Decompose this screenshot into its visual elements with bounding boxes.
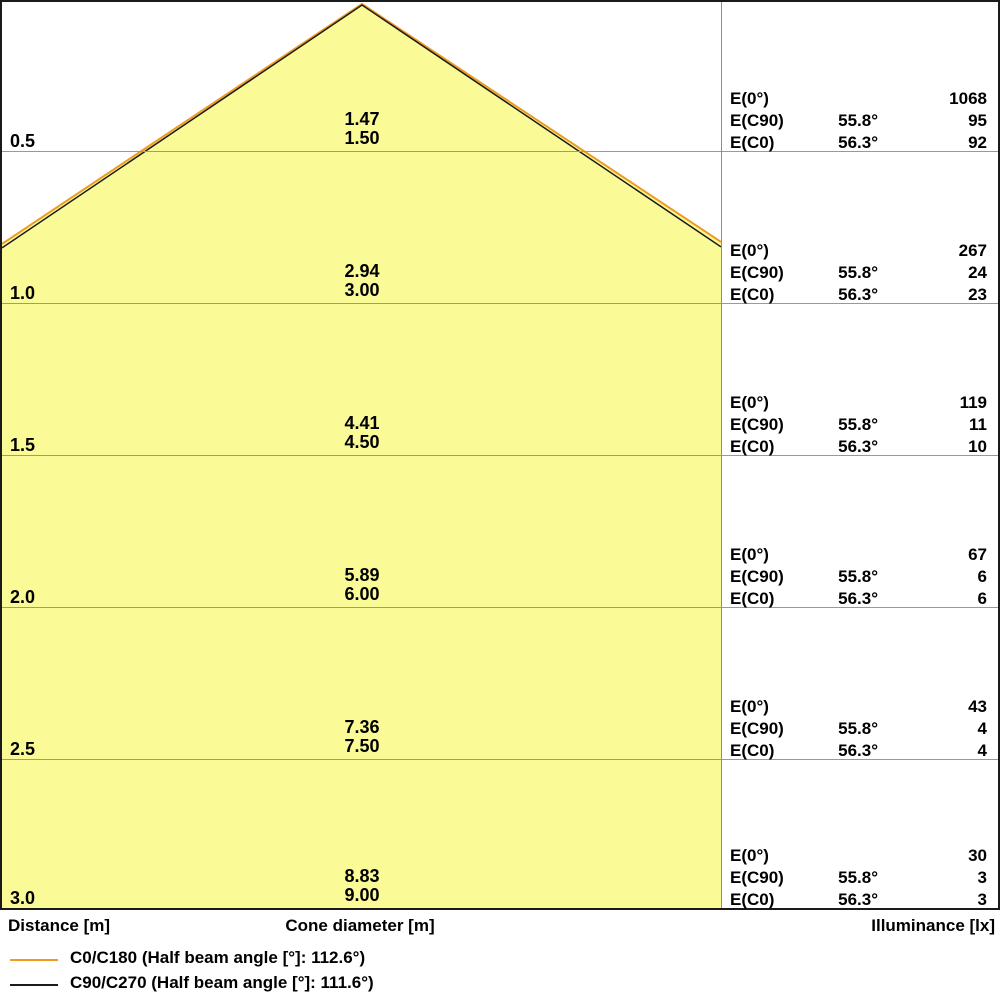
ec0-value: 6 [978,588,987,610]
e0-label: E(0°) [730,88,769,110]
e0-label: E(0°) [730,845,769,867]
illuminance-block: E(0°) 267 E(C90) 55.8° 24 E(C0) 56.3° 23 [721,240,998,306]
ec90-value: 24 [968,262,987,284]
distance-label: 3.0 [10,888,35,908]
ec90-value: 6 [978,566,987,588]
ec90-angle: 55.8° [838,262,878,284]
illuminance-e0-row: E(0°) 1068 [721,88,998,110]
cone-diameter-c90: 2.94 [301,262,423,281]
e0-value: 267 [959,240,987,262]
e0-label: E(0°) [730,696,769,718]
illuminance-ec90-row: E(C90) 55.8° 95 [721,110,998,132]
ec0-value: 23 [968,284,987,306]
cone-diameter-c0: 9.00 [301,886,423,905]
e0-value: 1068 [949,88,987,110]
ec0-value: 10 [968,436,987,458]
ec90-angle: 55.8° [838,867,878,889]
illuminance-e0-row: E(0°) 43 [721,696,998,718]
ec90-value: 4 [978,718,987,740]
illuminance-block: E(0°) 43 E(C90) 55.8° 4 E(C0) 56.3° 4 [721,696,998,762]
ec90-label: E(C90) [730,867,784,889]
ec90-value: 11 [969,414,987,436]
distance-label: 1.0 [10,283,35,303]
illuminance-ec0-row: E(C0) 56.3° 4 [721,740,998,762]
illuminance-ec90-row: E(C90) 55.8° 3 [721,867,998,889]
cone-diameter-c90: 4.41 [301,414,423,433]
illuminance-e0-row: E(0°) 119 [721,392,998,414]
ec90-label: E(C90) [730,718,784,740]
illuminance-ec0-row: E(C0) 56.3° 10 [721,436,998,458]
e0-value: 30 [968,845,987,867]
illuminance-ec90-row: E(C90) 55.8° 24 [721,262,998,284]
ec90-angle: 55.8° [838,566,878,588]
cone-diameter-values: 8.83 9.00 [301,867,423,905]
x-axis-label-distance: Distance [m] [8,916,110,936]
illuminance-e0-row: E(0°) 267 [721,240,998,262]
x-axis-label-cone-diameter: Cone diameter [m] [280,916,440,936]
ec90-angle: 55.8° [838,110,878,132]
ec90-value: 95 [968,110,987,132]
ec90-label: E(C90) [730,110,784,132]
illuminance-ec90-row: E(C90) 55.8° 11 [721,414,998,436]
illuminance-ec90-row: E(C90) 55.8° 4 [721,718,998,740]
cone-diameter-values: 2.94 3.00 [301,262,423,300]
cone-diameter-c90: 5.89 [301,566,423,585]
e0-value: 119 [960,392,987,414]
cone-diameter-values: 1.47 1.50 [301,110,423,148]
illuminance-ec0-row: E(C0) 56.3° 3 [721,889,998,911]
ec90-label: E(C90) [730,414,784,436]
legend-line-c90-c270 [10,984,58,986]
illuminance-block: E(0°) 67 E(C90) 55.8° 6 E(C0) 56.3° 6 [721,544,998,610]
ec0-angle: 56.3° [838,284,878,306]
cone-diameter-values: 5.89 6.00 [301,566,423,604]
illuminance-ec90-row: E(C90) 55.8° 6 [721,566,998,588]
legend-label-c90-c270: C90/C270 (Half beam angle [°]: 111.6°) [70,973,374,993]
cone-diameter-c0: 6.00 [301,585,423,604]
ec0-angle: 56.3° [838,889,878,911]
cone-diameter-values: 4.41 4.50 [301,414,423,452]
e0-label: E(0°) [730,392,769,414]
cone-diameter-c0: 4.50 [301,433,423,452]
light-cone-diagram: 0.5 1.47 1.50 E(0°) 1068 E(C90) 55.8° 95… [0,0,1000,1000]
e0-label: E(0°) [730,240,769,262]
illuminance-ec0-row: E(C0) 56.3° 92 [721,132,998,154]
cone-diameter-c0: 1.50 [301,129,423,148]
e0-value: 67 [968,544,987,566]
ec90-angle: 55.8° [838,414,878,436]
ec0-label: E(C0) [730,436,774,458]
illuminance-e0-row: E(0°) 67 [721,544,998,566]
e0-value: 43 [968,696,987,718]
ec0-label: E(C0) [730,889,774,911]
ec0-angle: 56.3° [838,740,878,762]
distance-label: 2.0 [10,587,35,607]
ec0-label: E(C0) [730,284,774,306]
cone-diameter-c0: 3.00 [301,281,423,300]
ec90-value: 3 [978,867,987,889]
x-axis-label-illuminance: Illuminance [lx] [871,916,995,936]
illuminance-ec0-row: E(C0) 56.3° 23 [721,284,998,306]
ec0-angle: 56.3° [838,588,878,610]
e0-label: E(0°) [730,544,769,566]
ec0-label: E(C0) [730,740,774,762]
legend-line-c0-c180 [10,959,58,961]
distance-label: 2.5 [10,739,35,759]
cone-diameter-c90: 7.36 [301,718,423,737]
cone-diameter-values: 7.36 7.50 [301,718,423,756]
ec90-label: E(C90) [730,566,784,588]
ec0-value: 4 [978,740,987,762]
cone-diameter-c0: 7.50 [301,737,423,756]
ec0-label: E(C0) [730,132,774,154]
distance-label: 0.5 [10,131,35,151]
illuminance-block: E(0°) 119 E(C90) 55.8° 11 E(C0) 56.3° 10 [721,392,998,458]
ec0-angle: 56.3° [838,436,878,458]
distance-label: 1.5 [10,435,35,455]
plot-area: 0.5 1.47 1.50 E(0°) 1068 E(C90) 55.8° 95… [0,0,1000,910]
ec90-label: E(C90) [730,262,784,284]
ec0-value: 92 [968,132,987,154]
illuminance-block: E(0°) 1068 E(C90) 55.8° 95 E(C0) 56.3° 9… [721,88,998,154]
illuminance-e0-row: E(0°) 30 [721,845,998,867]
illuminance-ec0-row: E(C0) 56.3° 6 [721,588,998,610]
ec90-angle: 55.8° [838,718,878,740]
ec0-value: 3 [978,889,987,911]
cone-diameter-c90: 1.47 [301,110,423,129]
legend-label-c0-c180: C0/C180 (Half beam angle [°]: 112.6°) [70,948,365,968]
ec0-label: E(C0) [730,588,774,610]
illuminance-block: E(0°) 30 E(C90) 55.8° 3 E(C0) 56.3° 3 [721,845,998,911]
cone-diameter-c90: 8.83 [301,867,423,886]
ec0-angle: 56.3° [838,132,878,154]
